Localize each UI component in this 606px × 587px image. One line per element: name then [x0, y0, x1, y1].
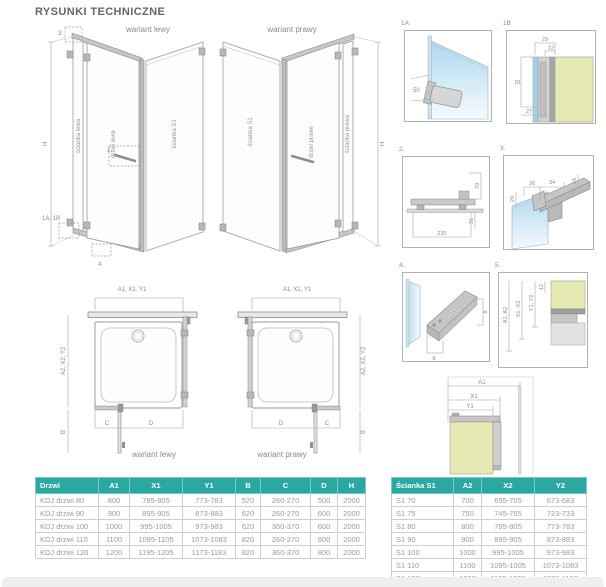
column-header: D: [311, 478, 338, 494]
table-cell: 360-370: [261, 520, 311, 533]
plan-top-dim: A1, X1, Y1: [118, 287, 147, 293]
wall-dimensions-table: Ścianka S1A2X2Y2S1 70700695-705673-683S1…: [391, 477, 587, 585]
doors-dimensions-table: DrzwiA1X1Y1BCDHKDJ drzwi 80800795-805773…: [35, 477, 366, 559]
panel-label: ścianka S1: [248, 117, 254, 147]
callout-label-3: 3.: [58, 31, 63, 37]
detail-2: 2. 70 31 230: [402, 156, 490, 248]
table-row: KDJ drzwi 11011001095-11051073-108382026…: [36, 533, 366, 546]
detail-1b-label: 1B: [503, 20, 511, 27]
fixed-panel: [95, 406, 119, 410]
callout-label-2: 2.: [107, 148, 112, 154]
corner-post: [282, 59, 286, 252]
table-cell: 820: [236, 533, 261, 546]
column-header: C: [261, 478, 311, 494]
plan-d-dim: D: [279, 421, 284, 427]
detail-5: 5. A1, A2 X1, X2 Y1, Y2 12: [498, 272, 588, 368]
column-header: Ścianka S1: [392, 478, 454, 494]
table-cell: 1195-1205: [130, 546, 183, 559]
glass-panel: [519, 386, 522, 474]
table-cell: 695-705: [482, 494, 535, 507]
table-cell: 1100: [454, 559, 482, 572]
dim-8-bottom: 8: [432, 356, 435, 362]
handle-bar: [411, 199, 475, 205]
panel-label: ścianka S1: [172, 119, 178, 149]
dim-a1a2: A1, A2: [503, 307, 509, 323]
table-cell: 820: [236, 546, 261, 559]
callout-label-4: 4.: [98, 262, 103, 268]
column-header: X1: [130, 478, 183, 494]
detail-4-label: 4.: [399, 262, 404, 269]
table-cell: 2000: [338, 533, 366, 546]
corner-post: [140, 59, 144, 252]
table-cell: 973-983: [183, 520, 236, 533]
dim-34: 34: [549, 180, 555, 186]
table-cell: 1000: [99, 520, 130, 533]
table-cell: 873-883: [183, 507, 236, 520]
technical-drawings-page: RYSUNKI TECHNICZNE wariant lewy H ściank…: [0, 0, 606, 587]
building-wall: [238, 312, 347, 318]
plan-side-dim: A2, X2, Y2: [61, 346, 67, 375]
corner-a1-dim: A1: [478, 380, 486, 386]
callout-box-4: [92, 244, 111, 256]
column-header: Drzwi: [36, 478, 99, 494]
table-cell: KDJ drzwi 80: [36, 494, 99, 507]
table-cell: 2000: [338, 546, 366, 559]
detail-1a-label: 1A: [401, 20, 409, 27]
dim-50: 50: [413, 88, 420, 94]
table-cell: 873-883: [535, 533, 587, 546]
dim-27: 27: [526, 109, 532, 115]
side-profile: [493, 422, 501, 466]
dim-26: 26: [529, 181, 535, 187]
dim-20: 20: [510, 196, 516, 202]
table-cell: 895-905: [130, 507, 183, 520]
table-cell: 600: [311, 507, 338, 520]
plan-top-dim: A1, X1, Y1: [283, 287, 312, 293]
plan-c-dim: C: [105, 421, 110, 427]
table-cell: 2000: [338, 507, 366, 520]
column-header: Y2: [535, 478, 587, 494]
corner-y1-dim: Y1: [466, 404, 474, 410]
plan-right-drawing: A1, X1, Y1 A2, X2, Y2 B D C wariant praw…: [224, 282, 392, 462]
table-cell: 995-1005: [482, 546, 535, 559]
table-cell: 1095-1105: [130, 533, 183, 546]
plan-variant-label: wariant prawy: [256, 450, 306, 459]
dim-x1x2: X1, X2: [516, 301, 522, 318]
dim-70: 70: [475, 183, 481, 189]
column-header: A2: [454, 478, 482, 494]
callout-label-1ab: 1A, 1B: [42, 216, 60, 222]
table-cell: 1073-1083: [535, 559, 587, 572]
panel-label: drzwi prawe: [309, 125, 315, 158]
table-row: KDJ drzwi 80800795-805773-783520260-2705…: [36, 494, 366, 507]
page-title: RYSUNKI TECHNICZNE: [35, 6, 165, 18]
table-row: KDJ drzwi 12012001195-12051173-118382036…: [36, 546, 366, 559]
table-cell: 973-983: [535, 546, 587, 559]
table-cell: 600: [311, 520, 338, 533]
table-row: KDJ drzwi 1001000995-1005973-983620360-3…: [36, 520, 366, 533]
top-profile: [450, 416, 500, 422]
section-divider: [2, 577, 604, 587]
table-cell: S1 100: [392, 546, 454, 559]
column-header: B: [236, 478, 261, 494]
table-cell: 723-733: [535, 507, 587, 520]
column-header: H: [338, 478, 366, 494]
table-row: S1 70700695-705673-683: [392, 494, 587, 507]
table-cell: 500: [311, 494, 338, 507]
table-cell: 1200: [99, 546, 130, 559]
table-cell: 2000: [338, 520, 366, 533]
iso-right-drawing: wariant prawy ścianka S1 drzwi prawe ści…: [208, 20, 390, 268]
table-cell: 745-755: [482, 507, 535, 520]
table-row: S1 90900895-905873-883: [392, 533, 587, 546]
variant-left-label: wariant lewy: [125, 25, 170, 34]
table-cell: 900: [99, 507, 130, 520]
plan-side-dim: A2, X2, Y2: [361, 346, 367, 375]
table-cell: 2000: [338, 494, 366, 507]
table-cell: 995-1005: [130, 520, 183, 533]
dim-230: 230: [437, 231, 446, 237]
table-cell: 1073-1083: [183, 533, 236, 546]
plan-left-drawing: A1, X1, Y1 A2, X2, Y2 B C D wariant lewy: [58, 282, 226, 462]
table-cell: S1 110: [392, 559, 454, 572]
table-cell: KDJ drzwi 110: [36, 533, 99, 546]
table-cell: 900: [454, 533, 482, 546]
dim-12: 12: [539, 284, 545, 290]
table-cell: 795-805: [130, 494, 183, 507]
open-door: [118, 412, 121, 453]
dim-12: 12: [548, 46, 554, 52]
table-cell: 800: [311, 546, 338, 559]
corner-x1-dim: X1: [470, 394, 478, 400]
table-cell: 1173-1183: [183, 546, 236, 559]
dim-16: 16: [572, 178, 578, 184]
height-dim-label: H: [380, 142, 386, 146]
building-wall: [88, 312, 197, 318]
detail-2-label: 2.: [399, 146, 404, 153]
table-cell: S1 80: [392, 520, 454, 533]
fixed-panel: [316, 406, 340, 410]
detail-1a: 1A 50: [404, 30, 492, 122]
dim-81: 81: [515, 80, 521, 86]
plan-d-dim: D: [149, 421, 154, 427]
table-cell: 520: [236, 494, 261, 507]
corner-detail-drawing: A1 X1 Y1: [440, 372, 606, 475]
plan-variant-label: wariant lewy: [131, 450, 176, 459]
table-cell: KDJ drzwi 100: [36, 520, 99, 533]
table-cell: 1000: [454, 546, 482, 559]
table-cell: 795-805: [482, 520, 535, 533]
table-cell: 1100: [99, 533, 130, 546]
table-cell: 800: [99, 494, 130, 507]
dim-29: 29: [542, 37, 548, 43]
table-cell: 895-905: [482, 533, 535, 546]
table-row: S1 1001000995-1005973-983: [392, 546, 587, 559]
detail-3: 3. 26 34 16 20: [503, 155, 594, 250]
detail-1b: 1B 29 12 81 27: [506, 30, 596, 124]
glass-pane: [408, 281, 420, 345]
table-row: S1 80800795-805773-783: [392, 520, 587, 533]
dim-8-right: 8: [483, 310, 489, 313]
table-cell: 260-270: [261, 494, 311, 507]
table-row: S1 75750745-755723-733: [392, 507, 587, 520]
table-cell: KDJ drzwi 90: [36, 507, 99, 520]
column-header: X2: [482, 478, 535, 494]
table-cell: S1 75: [392, 507, 454, 520]
detail-5-label: 5.: [495, 262, 500, 269]
panel-label: ścianka lewa: [76, 118, 82, 153]
table-cell: 260-270: [261, 533, 311, 546]
detail-3-label: 3.: [500, 145, 505, 152]
table-cell: 673-683: [535, 494, 587, 507]
table-cell: 773-783: [183, 494, 236, 507]
table-cell: S1 70: [392, 494, 454, 507]
table-cell: 800: [311, 533, 338, 546]
table-row: S1 11011001095-10051073-1083: [392, 559, 587, 572]
table-row: KDJ drzwi 90900895-905873-883620260-2706…: [36, 507, 366, 520]
glass-section: [533, 57, 538, 122]
table-cell: S1 90: [392, 533, 454, 546]
table-cell: 360-370: [261, 546, 311, 559]
glass-pane: [431, 41, 488, 119]
table-cell: 260-270: [261, 507, 311, 520]
table-cell: 620: [236, 507, 261, 520]
table-cell: 700: [454, 494, 482, 507]
variant-right-label: wariant prawy: [266, 25, 316, 34]
table-cell: 1095-1005: [482, 559, 535, 572]
plan-b-dim: B: [361, 430, 367, 434]
column-header: Y1: [183, 478, 236, 494]
table-cell: 773-783: [535, 520, 587, 533]
wall-section: [450, 422, 493, 474]
table-cell: 620: [236, 520, 261, 533]
detail-4: 4. 8 8: [402, 272, 490, 362]
table-cell: KDJ drzwi 120: [36, 546, 99, 559]
open-door: [314, 412, 317, 453]
wall-section: [555, 57, 593, 122]
dim-y1y2: Y1, Y2: [529, 295, 535, 311]
plan-c-dim: C: [325, 421, 330, 427]
panel-label: ścianka prawa: [345, 114, 351, 153]
table-cell: 750: [454, 507, 482, 520]
dim-31: 31: [469, 218, 475, 224]
wall-section: [551, 281, 585, 309]
column-header: A1: [99, 478, 130, 494]
table-cell: 800: [454, 520, 482, 533]
height-dim-label: H: [43, 142, 49, 146]
iso-left-drawing: wariant lewy H ścianka lewa drzwi lewe ś…: [36, 20, 208, 268]
plan-b-dim: B: [61, 430, 67, 434]
